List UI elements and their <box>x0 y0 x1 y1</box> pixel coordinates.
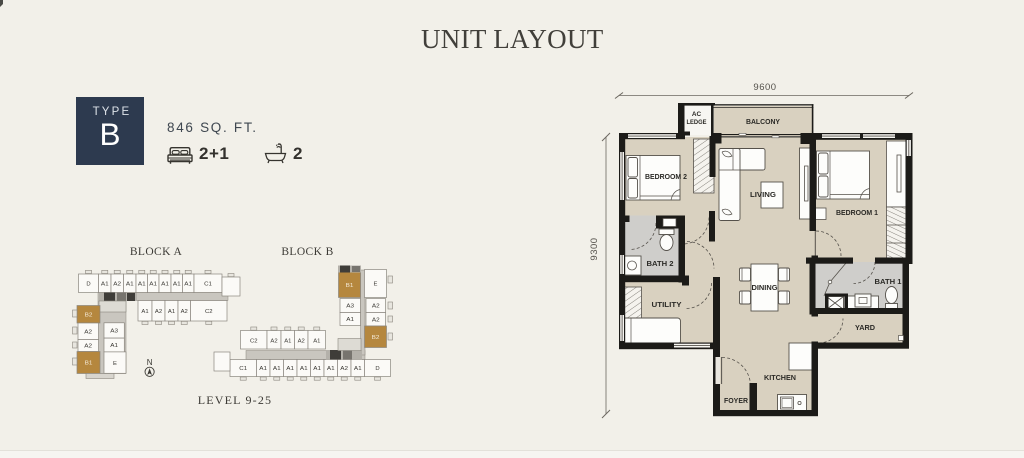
svg-text:LIVING: LIVING <box>750 190 776 199</box>
svg-text:E: E <box>374 282 378 288</box>
svg-text:FOYER: FOYER <box>724 396 749 405</box>
svg-text:A2: A2 <box>113 281 121 287</box>
svg-text:BALCONY: BALCONY <box>746 117 780 126</box>
svg-text:A2: A2 <box>270 339 277 345</box>
svg-text:A1: A1 <box>184 281 192 287</box>
svg-text:A2: A2 <box>298 339 305 345</box>
svg-text:A1: A1 <box>126 281 134 287</box>
svg-text:9300: 9300 <box>589 237 600 260</box>
svg-text:9600: 9600 <box>753 82 776 93</box>
svg-text:C2: C2 <box>250 339 258 345</box>
svg-text:B2: B2 <box>372 335 380 341</box>
svg-text:A2: A2 <box>340 366 348 372</box>
svg-text:BATH 2: BATH 2 <box>647 259 674 268</box>
svg-text:A1: A1 <box>101 281 109 287</box>
svg-text:B1: B1 <box>85 361 93 367</box>
svg-text:LEDGE: LEDGE <box>687 119 708 126</box>
svg-text:B1: B1 <box>346 283 354 289</box>
svg-text:A1: A1 <box>300 366 308 372</box>
svg-text:A2: A2 <box>181 309 188 315</box>
svg-text:C2: C2 <box>205 309 213 315</box>
svg-text:A1: A1 <box>354 366 362 372</box>
svg-text:BEDROOM 2: BEDROOM 2 <box>645 172 687 181</box>
svg-text:B2: B2 <box>85 312 93 318</box>
svg-text:A2: A2 <box>84 344 92 350</box>
svg-text:BEDROOM 1: BEDROOM 1 <box>836 208 878 217</box>
svg-text:A1: A1 <box>259 366 267 372</box>
svg-text:AC: AC <box>692 111 702 118</box>
svg-text:UTILITY: UTILITY <box>652 300 682 309</box>
svg-text:A1: A1 <box>141 309 148 315</box>
svg-text:A1: A1 <box>273 366 281 372</box>
svg-text:A1: A1 <box>149 281 157 287</box>
svg-text:A1: A1 <box>286 366 294 372</box>
svg-text:A3: A3 <box>346 304 355 310</box>
svg-text:A1: A1 <box>313 366 321 372</box>
svg-text:KITCHEN: KITCHEN <box>764 373 796 382</box>
svg-text:A1: A1 <box>346 317 354 323</box>
svg-text:A1: A1 <box>173 281 181 287</box>
svg-text:A1: A1 <box>284 339 291 345</box>
svg-text:E: E <box>113 361 117 367</box>
svg-text:A1: A1 <box>138 281 146 287</box>
svg-text:A1: A1 <box>327 366 335 372</box>
svg-text:DINING: DINING <box>752 283 778 292</box>
svg-text:A3: A3 <box>110 329 119 335</box>
svg-text:A2: A2 <box>372 317 380 323</box>
svg-text:N: N <box>147 358 153 367</box>
svg-text:A2: A2 <box>155 309 162 315</box>
svg-text:A1: A1 <box>313 339 320 345</box>
svg-text:A2: A2 <box>84 329 92 335</box>
svg-text:A2: A2 <box>372 304 380 310</box>
svg-text:YARD: YARD <box>855 323 876 332</box>
svg-text:D: D <box>86 281 90 287</box>
svg-text:A1: A1 <box>110 343 118 349</box>
svg-text:D: D <box>375 366 379 372</box>
svg-text:BATH 1: BATH 1 <box>875 277 902 286</box>
svg-text:A1: A1 <box>161 281 169 287</box>
svg-text:A1: A1 <box>168 309 175 315</box>
svg-text:C1: C1 <box>204 281 212 287</box>
svg-text:C1: C1 <box>239 366 247 372</box>
